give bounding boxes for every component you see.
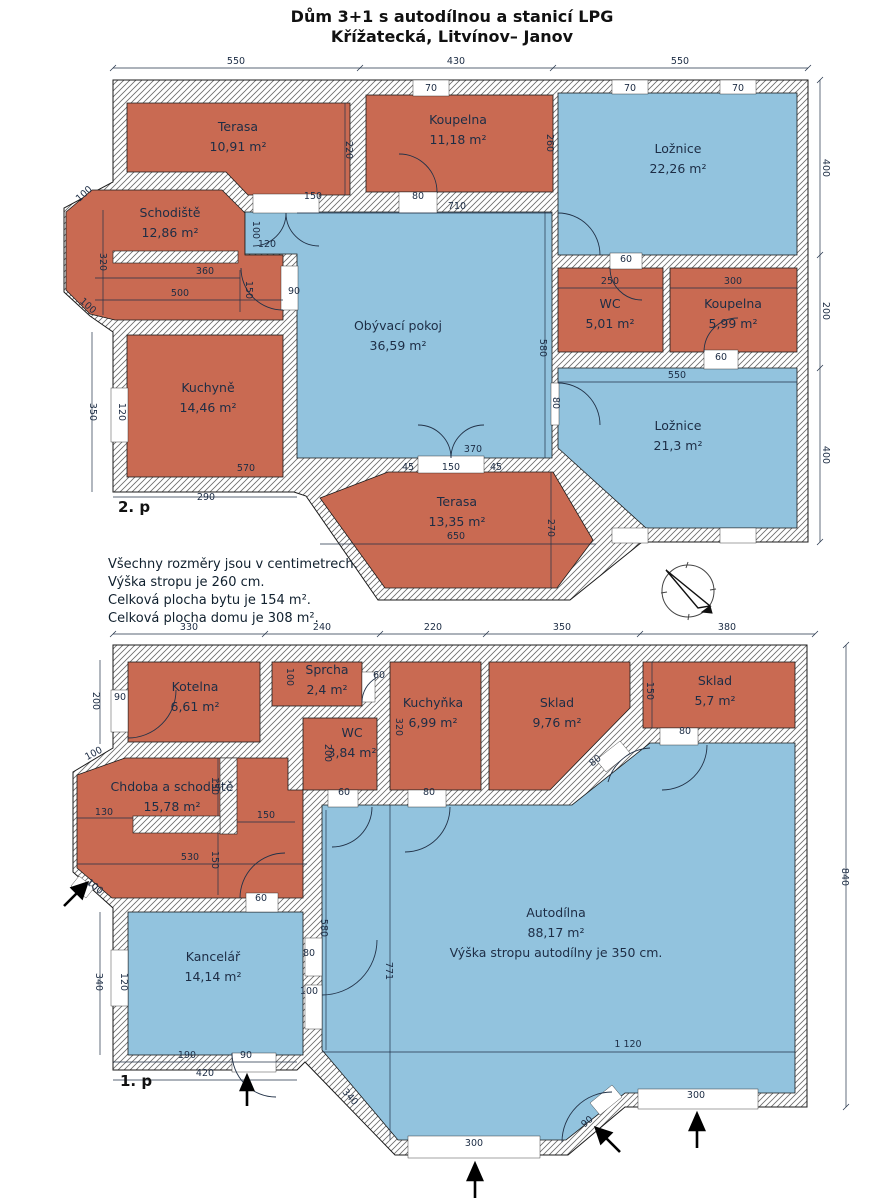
dimension-label: 500 (171, 288, 189, 299)
room-area-label: 9,76 m² (533, 715, 582, 730)
room-area-label: 3,84 m² (328, 745, 377, 760)
floor-plan-page: Dům 3+1 s autodílnou a stanicí LPG Kříža… (0, 0, 890, 1200)
room-label: WC (341, 725, 362, 740)
dimension-label: 80 (303, 948, 315, 959)
dimension-label: 840 (839, 868, 850, 886)
dimension-label: 350 (553, 622, 571, 633)
room-area-label: 12,86 m² (142, 225, 199, 240)
note-line: Celková plocha bytu je 154 m². (108, 593, 311, 608)
dimension-label: 100 (284, 668, 295, 686)
dimension-label: 380 (718, 622, 736, 633)
dimension-label: 260 (544, 134, 555, 152)
north-compass-icon (661, 562, 716, 620)
dimension-label: 80 (679, 726, 691, 737)
room-label: Kuchyně (181, 380, 235, 395)
dimension-label: 550 (668, 370, 686, 381)
room-label: Sklad (540, 695, 574, 710)
stair-wall-lower-vertical (220, 758, 237, 834)
dimension-label: 120 (118, 973, 129, 991)
entrance-arrow-right-gate (690, 1114, 704, 1148)
room-area-label: 2,4 m² (306, 682, 347, 697)
dimension-label: 200 (820, 302, 831, 320)
dimension-label: 90 (240, 1050, 252, 1061)
dimension-label: 150 (243, 281, 254, 299)
room-label: Ložnice (655, 141, 702, 156)
dimension-label: 530 (181, 852, 199, 863)
dimension-label: 240 (313, 622, 331, 633)
dimension-label: 80 (412, 191, 424, 202)
dimension-label: 420 (196, 1068, 214, 1079)
dimension-label: 1 120 (614, 1039, 641, 1050)
dimension-label: 400 (820, 446, 831, 464)
room-area-label: 6,61 m² (171, 699, 220, 714)
dimension-label: 340 (93, 973, 104, 991)
dimension-label: 60 (255, 893, 267, 904)
entrance-arrow-diagonal-door (596, 1128, 620, 1152)
dimension-label: 300 (465, 1138, 483, 1149)
dimension-label: 580 (537, 339, 548, 357)
room-area-label: 5,7 m² (694, 693, 735, 708)
room-label: Terasa (217, 119, 258, 134)
dimension-label: 330 (180, 622, 198, 633)
room-area-label: 22,26 m² (650, 161, 707, 176)
room-label: Sklad (698, 673, 732, 688)
room-area-label: 14,14 m² (185, 969, 242, 984)
dimension-label: 60 (373, 670, 385, 681)
room-area-label: 36,59 m² (370, 338, 427, 353)
dimension-label: 220 (424, 622, 442, 633)
dimension-label: 370 (464, 444, 482, 455)
dimension-label: 150 (209, 777, 220, 795)
dimension-label: 130 (95, 807, 113, 818)
dimension-label: 250 (601, 276, 619, 287)
dimension-label: 570 (237, 463, 255, 474)
note-line: Výška stropu je 260 cm. (108, 575, 265, 590)
dimension-label: 220 (343, 141, 354, 159)
room-area-label: 15,78 m² (144, 799, 201, 814)
room-area-label: 5,01 m² (586, 316, 635, 331)
room-area-label: 6,99 m² (409, 715, 458, 730)
entrance-arrow-bottom-gate (468, 1164, 482, 1198)
dimension-label: 100 (300, 986, 318, 997)
room-label: Ložnice (655, 418, 702, 433)
note-line: Všechny rozměry jsou v centimetrech. (108, 557, 358, 572)
room-label: Autodílna (526, 905, 586, 920)
dimension-label: 60 (620, 254, 632, 265)
dimension-label: 90 (288, 286, 300, 297)
room-area-label: 11,18 m² (430, 132, 487, 147)
notes-block: Všechny rozměry jsou v centimetrech. Výš… (108, 557, 358, 626)
dimension-label: 150 (209, 851, 220, 869)
room-area-label: 88,17 m² (528, 925, 585, 940)
dimension-label: 650 (447, 531, 465, 542)
stair-wall-lower-horizontal (133, 816, 220, 833)
dimension-label: 90 (114, 692, 126, 703)
dimension-label: 350 (87, 403, 98, 421)
dimension-label: 70 (732, 83, 744, 94)
room-label: Koupelna (429, 112, 487, 127)
dimension-label: 320 (97, 253, 108, 271)
dimension-label: 550 (227, 56, 245, 67)
dimension-label: 430 (447, 56, 465, 67)
dimension-label: 150 (644, 682, 655, 700)
window-70-loznice21-b (720, 528, 756, 543)
dimension-label: 150 (257, 810, 275, 821)
room-area-label: 14,46 m² (180, 400, 237, 415)
dimension-label: 45 (402, 462, 414, 473)
dimension-label: 150 (304, 191, 322, 202)
room-area-label: 10,91 m² (210, 139, 267, 154)
dimension-label: 200 (90, 692, 101, 710)
dimension-label: 70 (624, 83, 636, 94)
dimension-label: 190 (178, 1050, 196, 1061)
page-title: Dům 3+1 s autodílnou a stanicí LPG (291, 7, 614, 26)
room-label: Koupelna (704, 296, 762, 311)
dimension-label: 80 (423, 787, 435, 798)
room-label: Kuchyňka (403, 695, 463, 710)
room-label: Kancelář (186, 949, 241, 964)
dimension-label: 300 (724, 276, 742, 287)
dimension-label: 290 (197, 492, 215, 503)
entrance-arrow-kancelar (241, 1076, 253, 1106)
room-area-label: 13,35 m² (429, 514, 486, 529)
upper-floor-label: 2. p (118, 498, 150, 516)
dimension-label: 45 (490, 462, 502, 473)
dimension-label: 60 (338, 787, 350, 798)
lower-floor-label: 1. p (120, 1072, 152, 1090)
dimension-label: 80 (550, 397, 561, 409)
room-label: Sprcha (305, 662, 348, 677)
dimension-label: 120 (258, 239, 276, 250)
dimension-label: 300 (687, 1090, 705, 1101)
dimension-label: 580 (318, 919, 329, 937)
entrance-arrow-chdoba (64, 883, 87, 906)
note-line: Celková plocha domu je 308 m². (108, 611, 319, 626)
dimension-label: 120 (116, 403, 127, 421)
dimension-label: 360 (196, 266, 214, 277)
room-area-label: 5,99 m² (709, 316, 758, 331)
room-label: Terasa (436, 494, 477, 509)
window-70-loznice21-a (612, 528, 648, 543)
dimension-label: 710 (448, 201, 466, 212)
room-note-label: Výška stropu autodílny je 350 cm. (450, 945, 663, 960)
page-subtitle: Křížatecká, Litvínov– Janov (331, 27, 574, 46)
dimension-label: 270 (545, 519, 556, 537)
dimension-label: 150 (442, 462, 460, 473)
room-label: Kotelna (172, 679, 219, 694)
dimension-label: 400 (820, 159, 831, 177)
dimension-label: 100 (250, 221, 261, 239)
dimension-label: 771 (383, 962, 394, 980)
room-label: WC (599, 296, 620, 311)
dimension-label: 320 (393, 718, 404, 736)
dimension-label: 60 (715, 352, 727, 363)
floor-plan-drawing: Dům 3+1 s autodílnou a stanicí LPG Kříža… (0, 0, 890, 1200)
dimension-label: 70 (425, 83, 437, 94)
room-label: Obývací pokoj (354, 318, 442, 333)
room-area-label: 21,3 m² (654, 438, 703, 453)
room-label: Schodiště (140, 205, 201, 220)
door-90-kancelar-bottom (232, 1053, 276, 1072)
stair-wall-upper (113, 251, 238, 263)
dimension-label: 200 (322, 744, 333, 762)
dimension-label: 550 (671, 56, 689, 67)
